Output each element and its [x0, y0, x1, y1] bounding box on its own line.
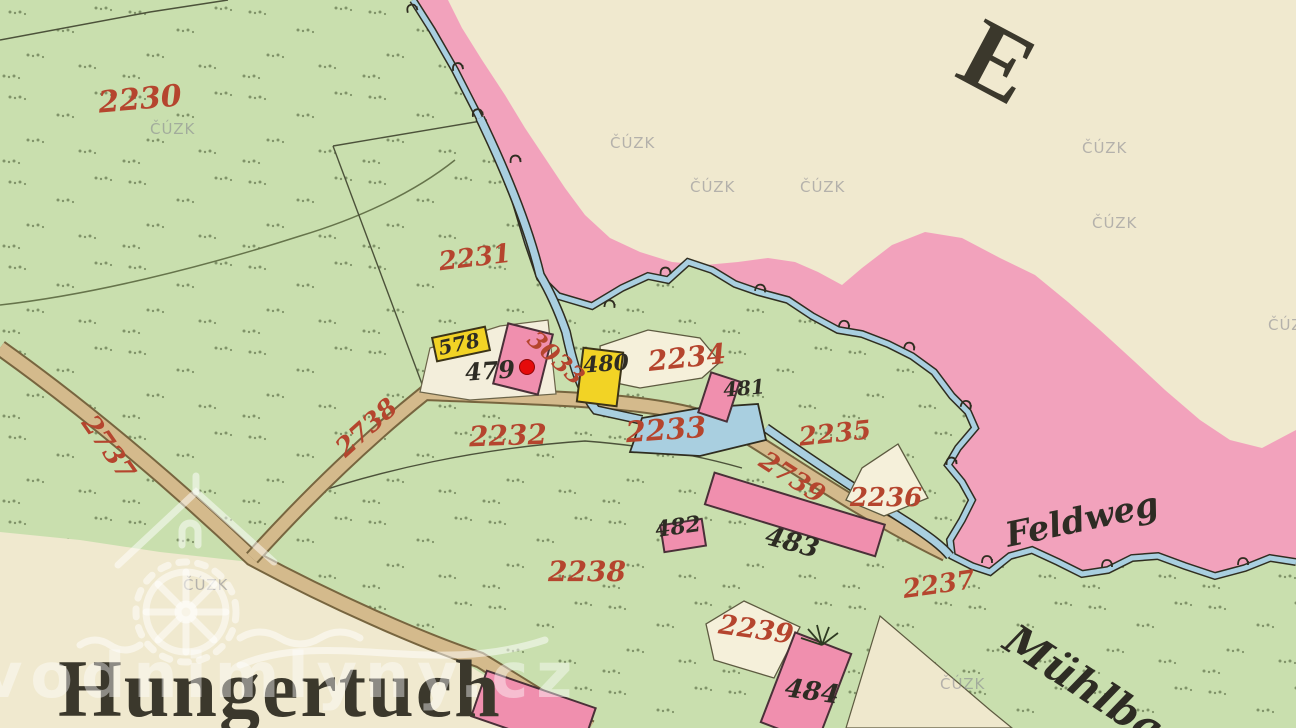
parcel-label-2233: 2233: [625, 413, 708, 448]
house-label-578: 578: [437, 330, 482, 358]
parcel-label-2234: 2234: [647, 340, 727, 376]
section-letter: E: [945, 2, 1051, 122]
parcel-label-3033: 3033: [523, 327, 589, 390]
parcel-label-2739: 2739: [755, 447, 830, 508]
parcel-label-2238: 2238: [548, 558, 626, 586]
house-label-484: 484: [783, 675, 840, 708]
parcel-label-2738: 2738: [331, 394, 402, 462]
road-name-feldweg: Feldweg: [1003, 487, 1162, 553]
parcel-label-2236: 2236: [850, 485, 922, 511]
house-label-481: 481: [722, 376, 765, 400]
house-label-482: 482: [654, 513, 703, 541]
parcel-label-2235: 2235: [798, 417, 873, 450]
house-label-483: 483: [762, 523, 821, 562]
cadastral-map: 2230 2231 2232 2233 2234 2235 2236 2237 …: [0, 0, 1296, 728]
parcel-label-2237: 2237: [901, 567, 976, 603]
label-layer: 2230 2231 2232 2233 2234 2235 2236 2237 …: [0, 0, 1296, 728]
house-label-479: 479: [464, 357, 516, 384]
house-label-480: 480: [582, 351, 629, 376]
parcel-label-2239: 2239: [717, 611, 795, 648]
parcel-label-2737: 2737: [77, 411, 140, 485]
parcel-label-2230: 2230: [97, 81, 183, 118]
stream-name-muehlbach: Mühlbach: [997, 618, 1218, 728]
parcel-label-2232: 2232: [469, 421, 548, 452]
parcel-label-2231: 2231: [437, 241, 512, 276]
settlement-name: Hungertuch: [58, 648, 502, 728]
